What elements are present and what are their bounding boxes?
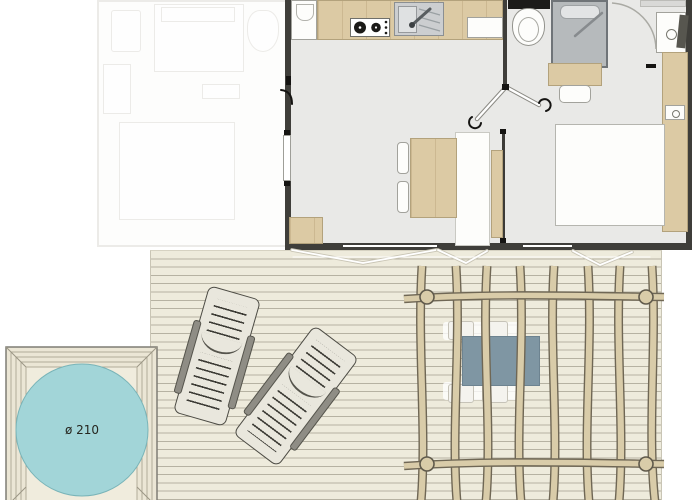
left-wall-door-pull xyxy=(281,90,292,104)
patio-door-swings xyxy=(292,250,650,265)
shower-bar xyxy=(575,13,602,36)
interior-double-doors xyxy=(469,84,551,128)
cooktop-burners xyxy=(354,21,387,35)
floor-plan-canvas: ø 210 xyxy=(0,0,700,500)
hot-tub: ø 210 xyxy=(6,347,157,500)
sink-details xyxy=(409,9,440,31)
hot-tub-diameter-label: ø 210 xyxy=(65,423,99,437)
pergola xyxy=(404,266,664,500)
bathroom-door-arc xyxy=(612,3,656,49)
plan-overlay: ø 210 xyxy=(0,0,700,500)
